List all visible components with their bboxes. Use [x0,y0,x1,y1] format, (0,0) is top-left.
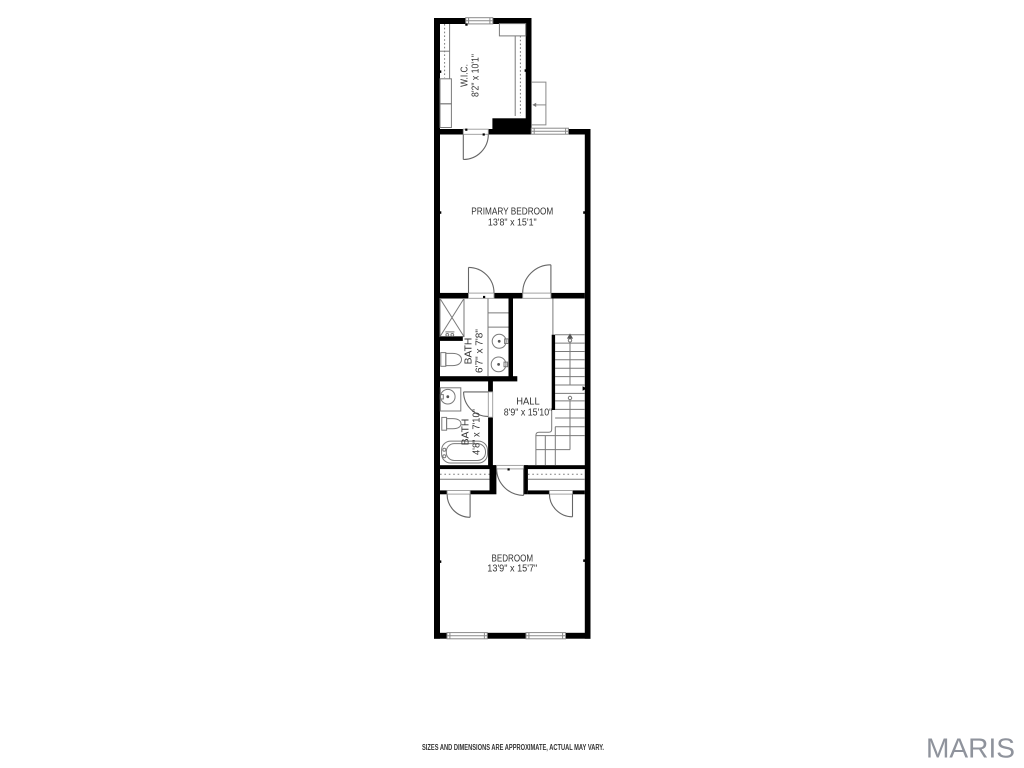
svg-text:SIZES AND DIMENSIONS ARE APPRO: SIZES AND DIMENSIONS ARE APPROXIMATE, AC… [422,743,604,752]
svg-text:4'8" x 7'10": 4'8" x 7'10" [472,409,483,455]
svg-text:BATH: BATH [461,419,472,446]
svg-text:W.I.C.: W.I.C. [460,64,471,87]
svg-text:6'7" x 7'8": 6'7" x 7'8" [475,329,486,373]
svg-text:MARIS: MARIS [926,733,1015,764]
svg-text:HALL: HALL [516,397,540,408]
svg-text:13'9" x 15'7": 13'9" x 15'7" [487,564,537,575]
svg-text:PRIMARY BEDROOM: PRIMARY BEDROOM [471,206,553,217]
svg-text:13'8" x 15'1": 13'8" x 15'1" [488,218,537,229]
svg-text:8'2" x 10'1": 8'2" x 10'1" [471,54,482,97]
svg-text:BATH: BATH [464,338,475,365]
svg-text:8'9" x 15'10": 8'9" x 15'10" [504,408,553,419]
